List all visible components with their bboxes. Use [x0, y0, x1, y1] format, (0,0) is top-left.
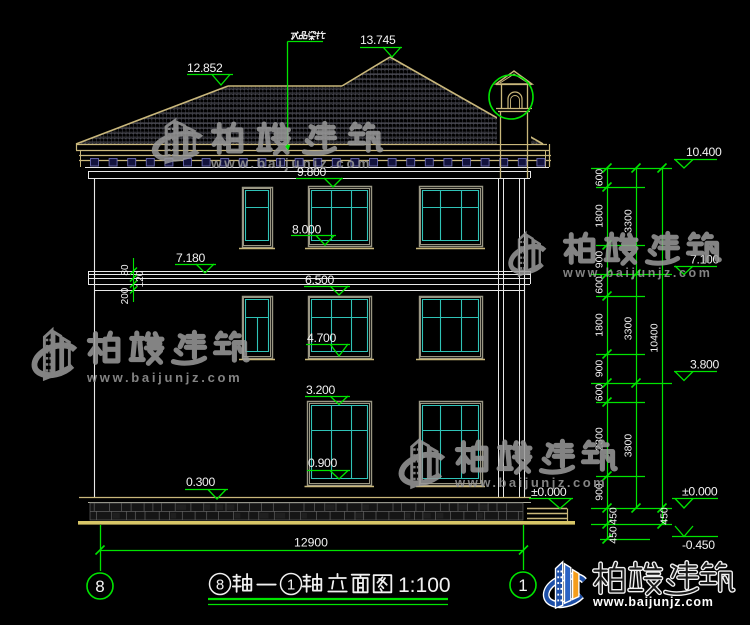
svg-text:450: 450 [608, 507, 620, 525]
svg-text:-0.450: -0.450 [682, 538, 715, 552]
svg-text:8.000: 8.000 [292, 223, 322, 237]
svg-text:0.900: 0.900 [308, 456, 338, 470]
svg-text:80: 80 [120, 264, 131, 276]
svg-text:3800: 3800 [623, 434, 635, 458]
svg-text:13.745: 13.745 [360, 33, 396, 47]
svg-text:6.500: 6.500 [305, 273, 335, 287]
svg-text:www.baijunjz.com: www.baijunjz.com [562, 266, 712, 280]
svg-text:1: 1 [518, 576, 527, 595]
svg-text:4.700: 4.700 [307, 331, 337, 345]
svg-text:±0.000: ±0.000 [682, 485, 718, 499]
svg-text:12900: 12900 [294, 536, 328, 550]
svg-text:450: 450 [659, 507, 671, 525]
svg-text:120: 120 [135, 270, 146, 287]
svg-text:12.852: 12.852 [187, 61, 223, 75]
svg-text:3.800: 3.800 [690, 358, 720, 372]
svg-text:200: 200 [120, 287, 131, 304]
svg-text:3.200: 3.200 [306, 383, 336, 397]
svg-text:www.baijunjz.com: www.baijunjz.com [454, 475, 607, 490]
svg-text:7.180: 7.180 [176, 251, 206, 265]
svg-text:www.baijunjz.com: www.baijunjz.com [592, 595, 714, 609]
svg-text:1800: 1800 [594, 204, 606, 228]
svg-text:3300: 3300 [623, 317, 635, 341]
svg-text:450: 450 [608, 526, 620, 544]
svg-text:3300: 3300 [623, 209, 635, 233]
svg-text:10400: 10400 [649, 323, 661, 352]
svg-text:0.300: 0.300 [186, 475, 216, 489]
svg-text:1:100: 1:100 [398, 574, 451, 597]
svg-text:8: 8 [95, 577, 104, 596]
svg-text:10.400: 10.400 [686, 145, 722, 159]
svg-text:1800: 1800 [594, 313, 606, 337]
svg-text:www.baijunjz.com: www.baijunjz.com [86, 370, 242, 385]
svg-text:600: 600 [594, 169, 606, 187]
svg-text:900: 900 [594, 360, 606, 378]
svg-text:1: 1 [287, 577, 295, 594]
svg-text:600: 600 [594, 384, 606, 402]
svg-text:www.baijunjz.com: www.baijunjz.com [210, 156, 372, 171]
svg-text:8: 8 [216, 577, 224, 594]
